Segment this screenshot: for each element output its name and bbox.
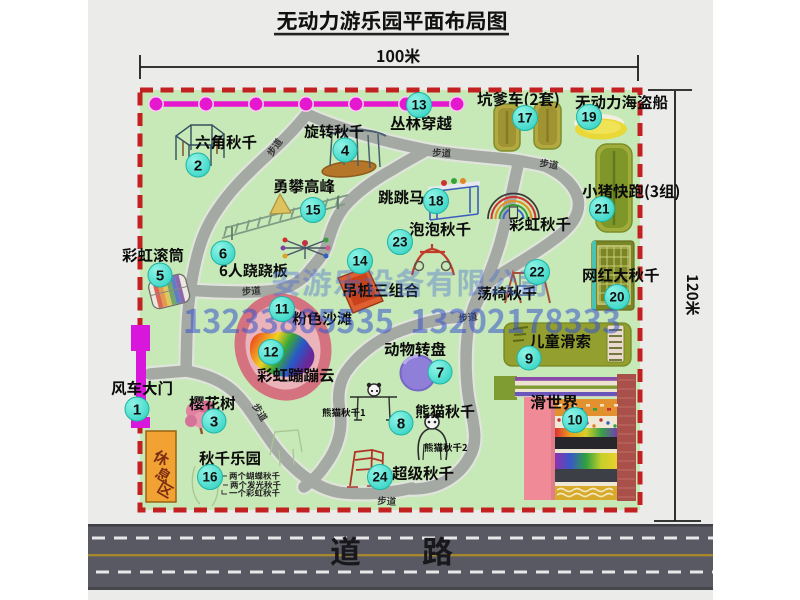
- svg-text:3: 3: [210, 413, 218, 430]
- svg-text:8: 8: [397, 415, 405, 432]
- svg-text:16: 16: [202, 470, 218, 485]
- svg-text:9: 9: [525, 350, 533, 367]
- svg-text:10: 10: [567, 413, 582, 428]
- svg-text:20: 20: [609, 290, 624, 305]
- svg-text:13: 13: [411, 98, 427, 113]
- svg-text:6: 6: [219, 245, 227, 262]
- svg-text:12: 12: [263, 345, 278, 360]
- svg-text:21: 21: [594, 202, 610, 217]
- svg-text:18: 18: [428, 194, 444, 209]
- svg-text:23: 23: [392, 235, 408, 250]
- svg-text:4: 4: [341, 142, 350, 159]
- svg-text:22: 22: [529, 265, 544, 280]
- svg-text:1: 1: [133, 401, 141, 418]
- svg-text:24: 24: [372, 470, 388, 485]
- svg-text:2: 2: [194, 157, 202, 174]
- svg-text:11: 11: [275, 302, 290, 317]
- svg-text:19: 19: [581, 110, 596, 125]
- svg-text:15: 15: [305, 203, 321, 218]
- svg-text:7: 7: [436, 364, 444, 381]
- svg-text:5: 5: [156, 267, 164, 284]
- svg-text:14: 14: [352, 254, 368, 269]
- svg-text:17: 17: [517, 111, 532, 126]
